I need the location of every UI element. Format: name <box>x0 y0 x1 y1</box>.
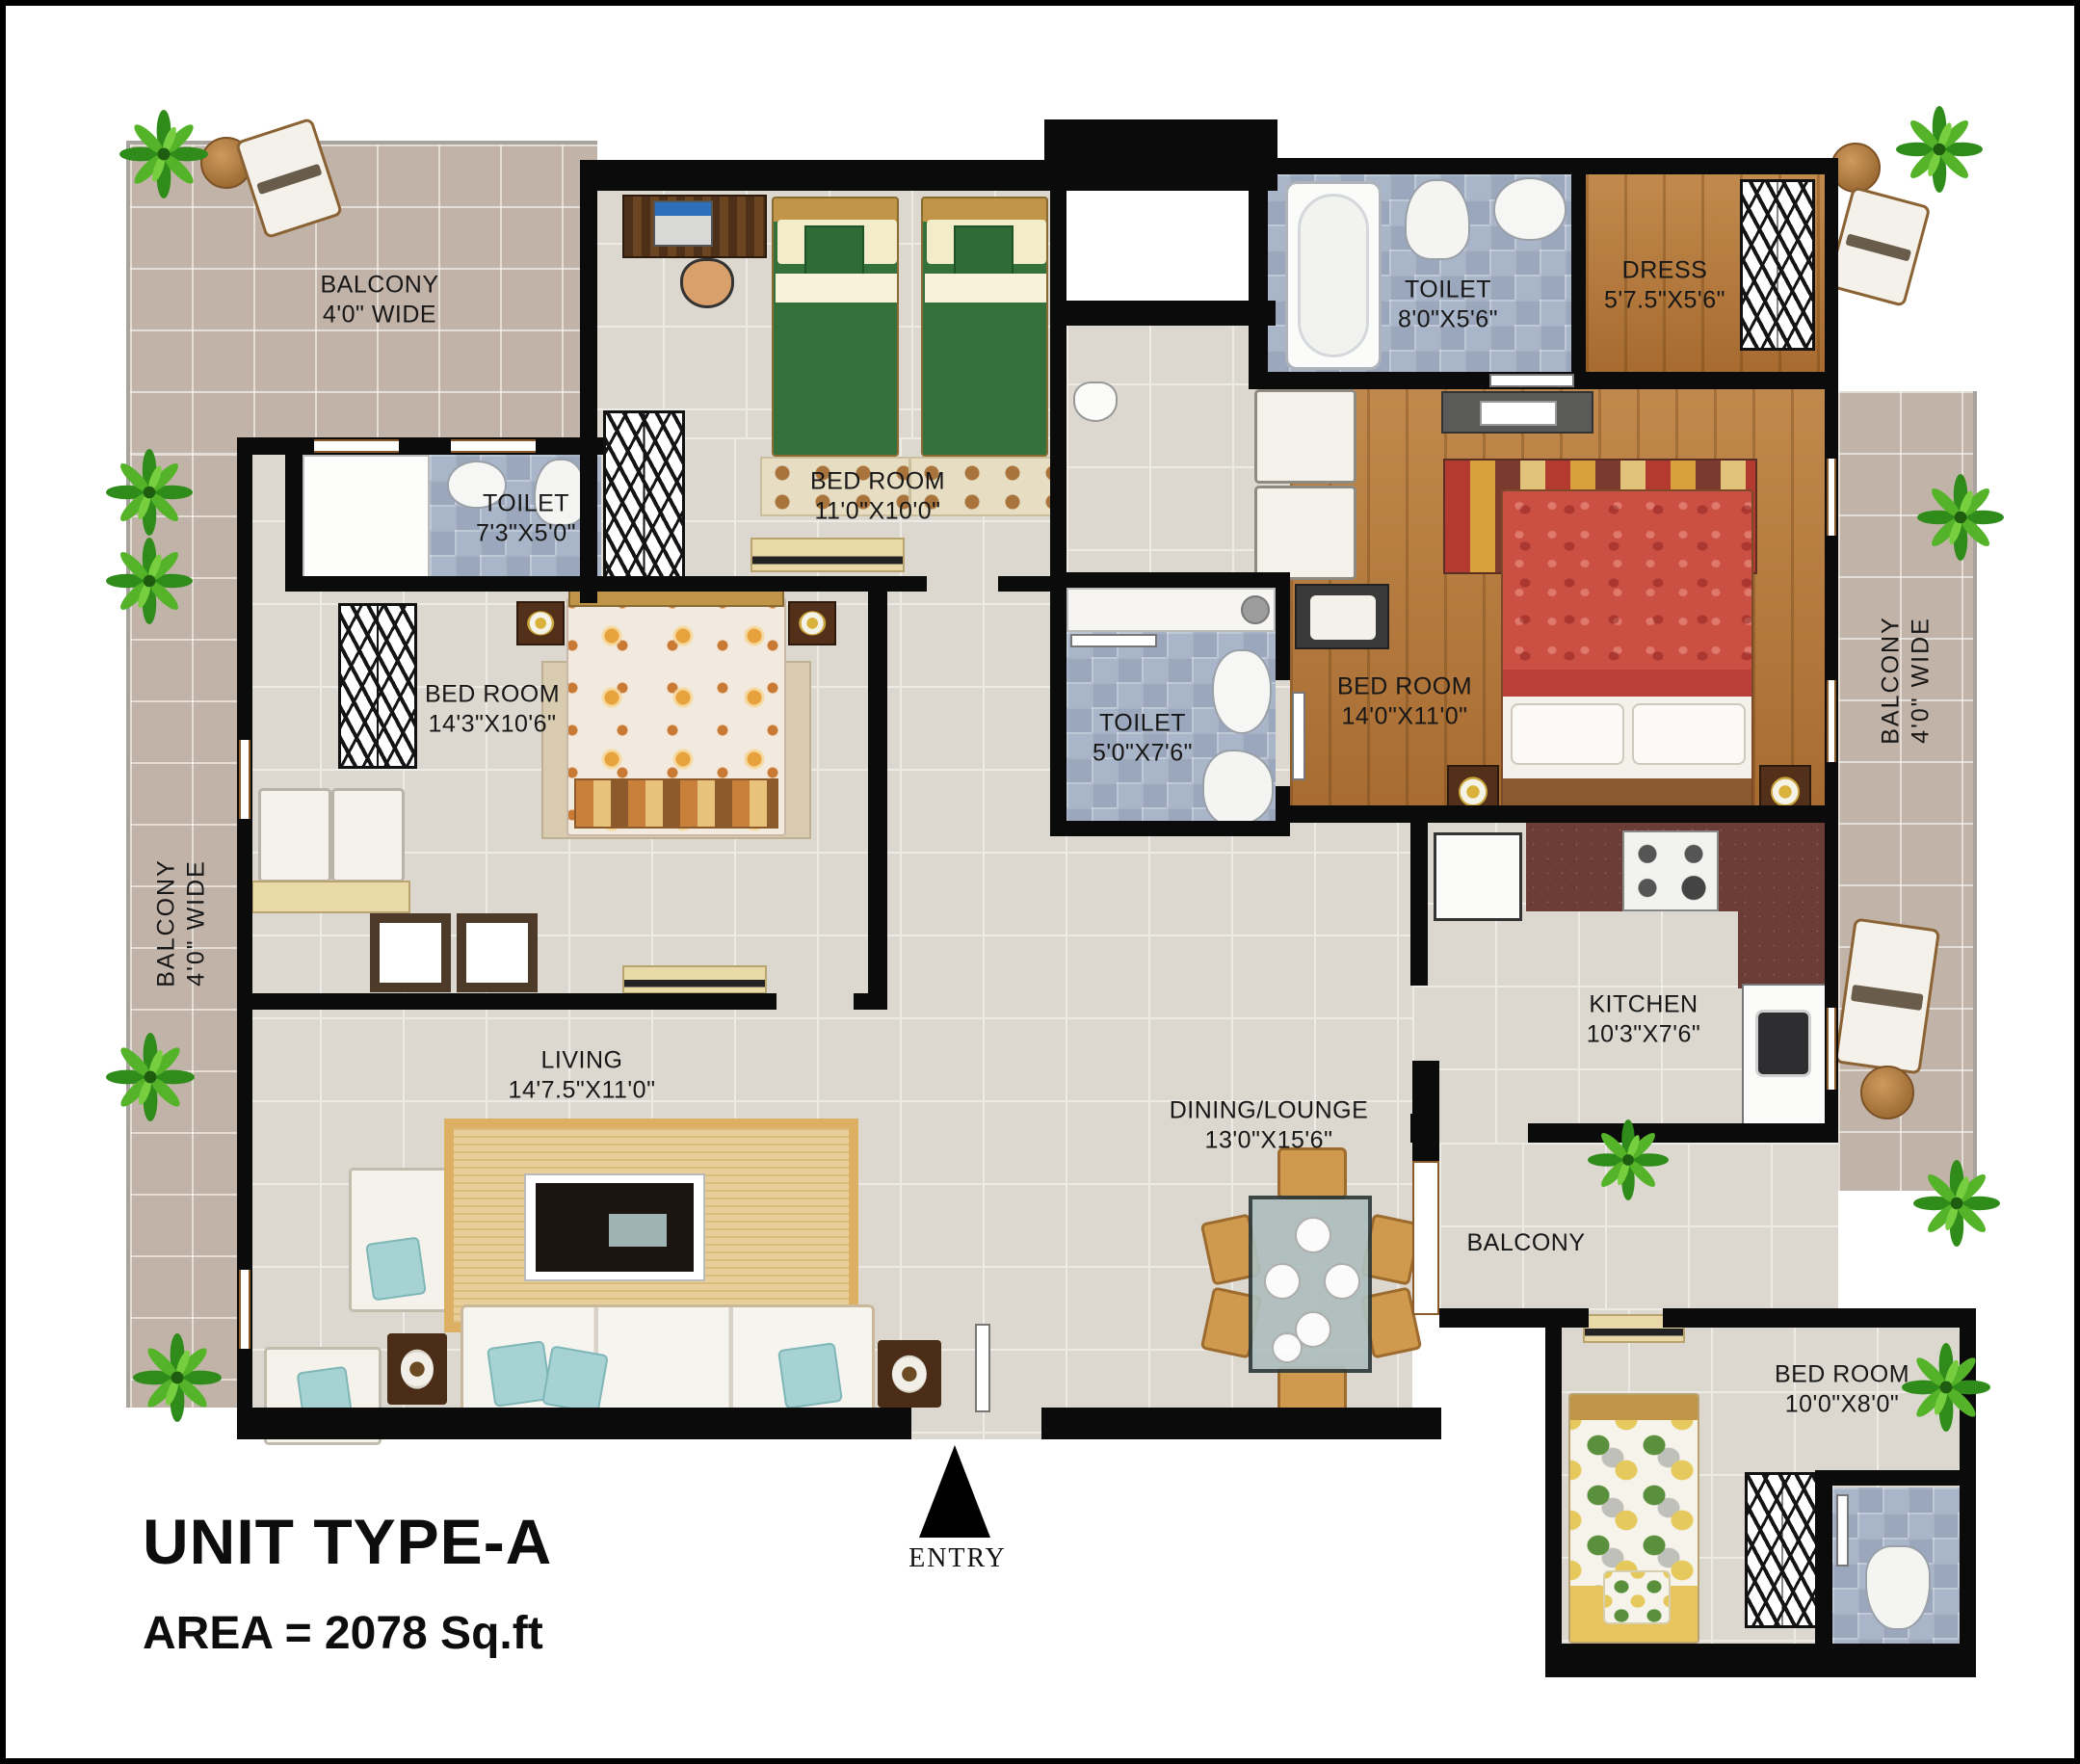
armchair <box>1254 389 1356 484</box>
room-label-bedroom-master: BED ROOM 14'0"X11'0" <box>1337 672 1472 731</box>
plant-icon <box>106 538 193 624</box>
room-label-living: LIVING 14'7.5"X11'0" <box>509 1046 656 1105</box>
room-label-toilet-mid: TOILET 5'0"X7'6" <box>1093 709 1193 768</box>
dining-table <box>1249 1196 1372 1373</box>
room-label-kitchen: KITCHEN 10'3"X7'6" <box>1587 990 1701 1049</box>
plant-icon <box>106 1033 195 1121</box>
desk-chair <box>680 258 734 308</box>
toilet-small-door-leaf <box>1836 1494 1849 1567</box>
laptop <box>653 200 713 247</box>
room-label-bedroom-small: BED ROOM 10'0"X8'0" <box>1775 1360 1909 1419</box>
window <box>239 1270 250 1349</box>
tv-dresser <box>622 965 767 994</box>
round-table <box>1860 1066 1914 1119</box>
plant-icon <box>133 1333 222 1422</box>
double-bed-floral <box>566 597 786 836</box>
room-label-toilet-top-right: TOILET 8'0"X5'6" <box>1398 276 1498 334</box>
room-label-balcony-right: BALCONY 4'0" WIDE <box>1877 616 1935 744</box>
toilet-door-leaf <box>1489 374 1574 387</box>
armchair <box>258 788 331 882</box>
side-table <box>878 1340 941 1408</box>
kitchen-counter-right <box>1738 823 1827 988</box>
plant-icon <box>1902 1343 1990 1432</box>
tv-table <box>524 1173 705 1281</box>
tv-cabinet <box>1441 391 1593 434</box>
wardrobe-left-bedroom <box>338 603 417 769</box>
toilet-wc <box>1865 1545 1931 1630</box>
toilet-mid-door-leaf <box>1070 634 1157 647</box>
twin-bed-2 <box>921 197 1048 457</box>
floor-plan-canvas: BALCONY 4'0" WIDE BALCONY 4'0" WIDE BALC… <box>0 0 2080 1764</box>
side-table <box>387 1333 447 1405</box>
toilet-wc <box>1405 179 1470 260</box>
entry-door-leaf <box>975 1324 990 1412</box>
area-subtitle: AREA = 2078 Sq.ft <box>143 1607 543 1660</box>
ottoman <box>1295 584 1389 649</box>
plant-icon <box>106 449 193 536</box>
window <box>239 740 250 819</box>
wash-basin <box>1073 382 1118 422</box>
room-label-balcony-bottom: BALCONY <box>1467 1228 1586 1258</box>
shower-area <box>303 455 430 590</box>
wall-frame <box>370 913 451 992</box>
chaise-lounge <box>1826 186 1931 307</box>
nightstand <box>516 601 565 645</box>
dining-chair <box>1277 1147 1347 1199</box>
wardrobe-dress <box>1740 179 1815 351</box>
window <box>451 439 536 453</box>
wardrobe-small-bedroom <box>1745 1472 1820 1628</box>
room-label-dining: DINING/LOUNGE 13'0"X15'6" <box>1170 1096 1369 1155</box>
nightstand <box>788 601 836 645</box>
console-table <box>251 881 410 913</box>
entry-arrow-icon <box>919 1445 990 1538</box>
balcony-french-door <box>1412 1161 1439 1315</box>
wall-frame <box>457 913 538 992</box>
room-label-toilet-top-left: TOILET 7'3"X5'0" <box>476 489 576 548</box>
master-bed <box>1501 489 1753 820</box>
armchair <box>331 788 405 882</box>
sink <box>1212 649 1272 734</box>
window <box>1827 1008 1836 1090</box>
window <box>1827 680 1836 762</box>
kitchen-sink <box>1755 1010 1811 1077</box>
room-label-dress: DRESS 5'7.5"X5'6" <box>1604 256 1725 315</box>
plant-icon <box>1588 1119 1669 1200</box>
unit-title: UNIT TYPE-A <box>143 1505 552 1578</box>
master-door-leaf <box>1292 692 1305 780</box>
entry-label: ENTRY <box>908 1543 1007 1574</box>
room-label-bedroom-left: BED ROOM 14'3"X10'6" <box>425 680 560 739</box>
single-bed-polka <box>1568 1393 1699 1644</box>
window <box>314 439 399 453</box>
tv-dresser <box>750 538 905 572</box>
armchair <box>1254 486 1356 580</box>
plant-icon <box>1917 474 2004 561</box>
room-label-bedroom-top: BED ROOM 11'0"X10'0" <box>810 467 945 526</box>
sink <box>1493 177 1567 241</box>
refrigerator <box>1434 832 1522 921</box>
plant-icon <box>1896 106 1983 193</box>
plant-icon <box>119 110 208 198</box>
room-label-balcony-left: BALCONY 4'0" WIDE <box>152 858 211 987</box>
gas-stove <box>1622 830 1719 911</box>
wardrobe-top-bedroom <box>603 410 685 593</box>
plant-icon <box>1913 1160 2000 1247</box>
window <box>1827 459 1836 536</box>
toilet-wc <box>1202 750 1274 827</box>
vanity-stool <box>1241 595 1270 624</box>
room-label-balcony-top-left: BALCONY 4'0" WIDE <box>321 271 439 329</box>
twin-bed-1 <box>772 197 899 457</box>
bathtub <box>1285 181 1382 370</box>
